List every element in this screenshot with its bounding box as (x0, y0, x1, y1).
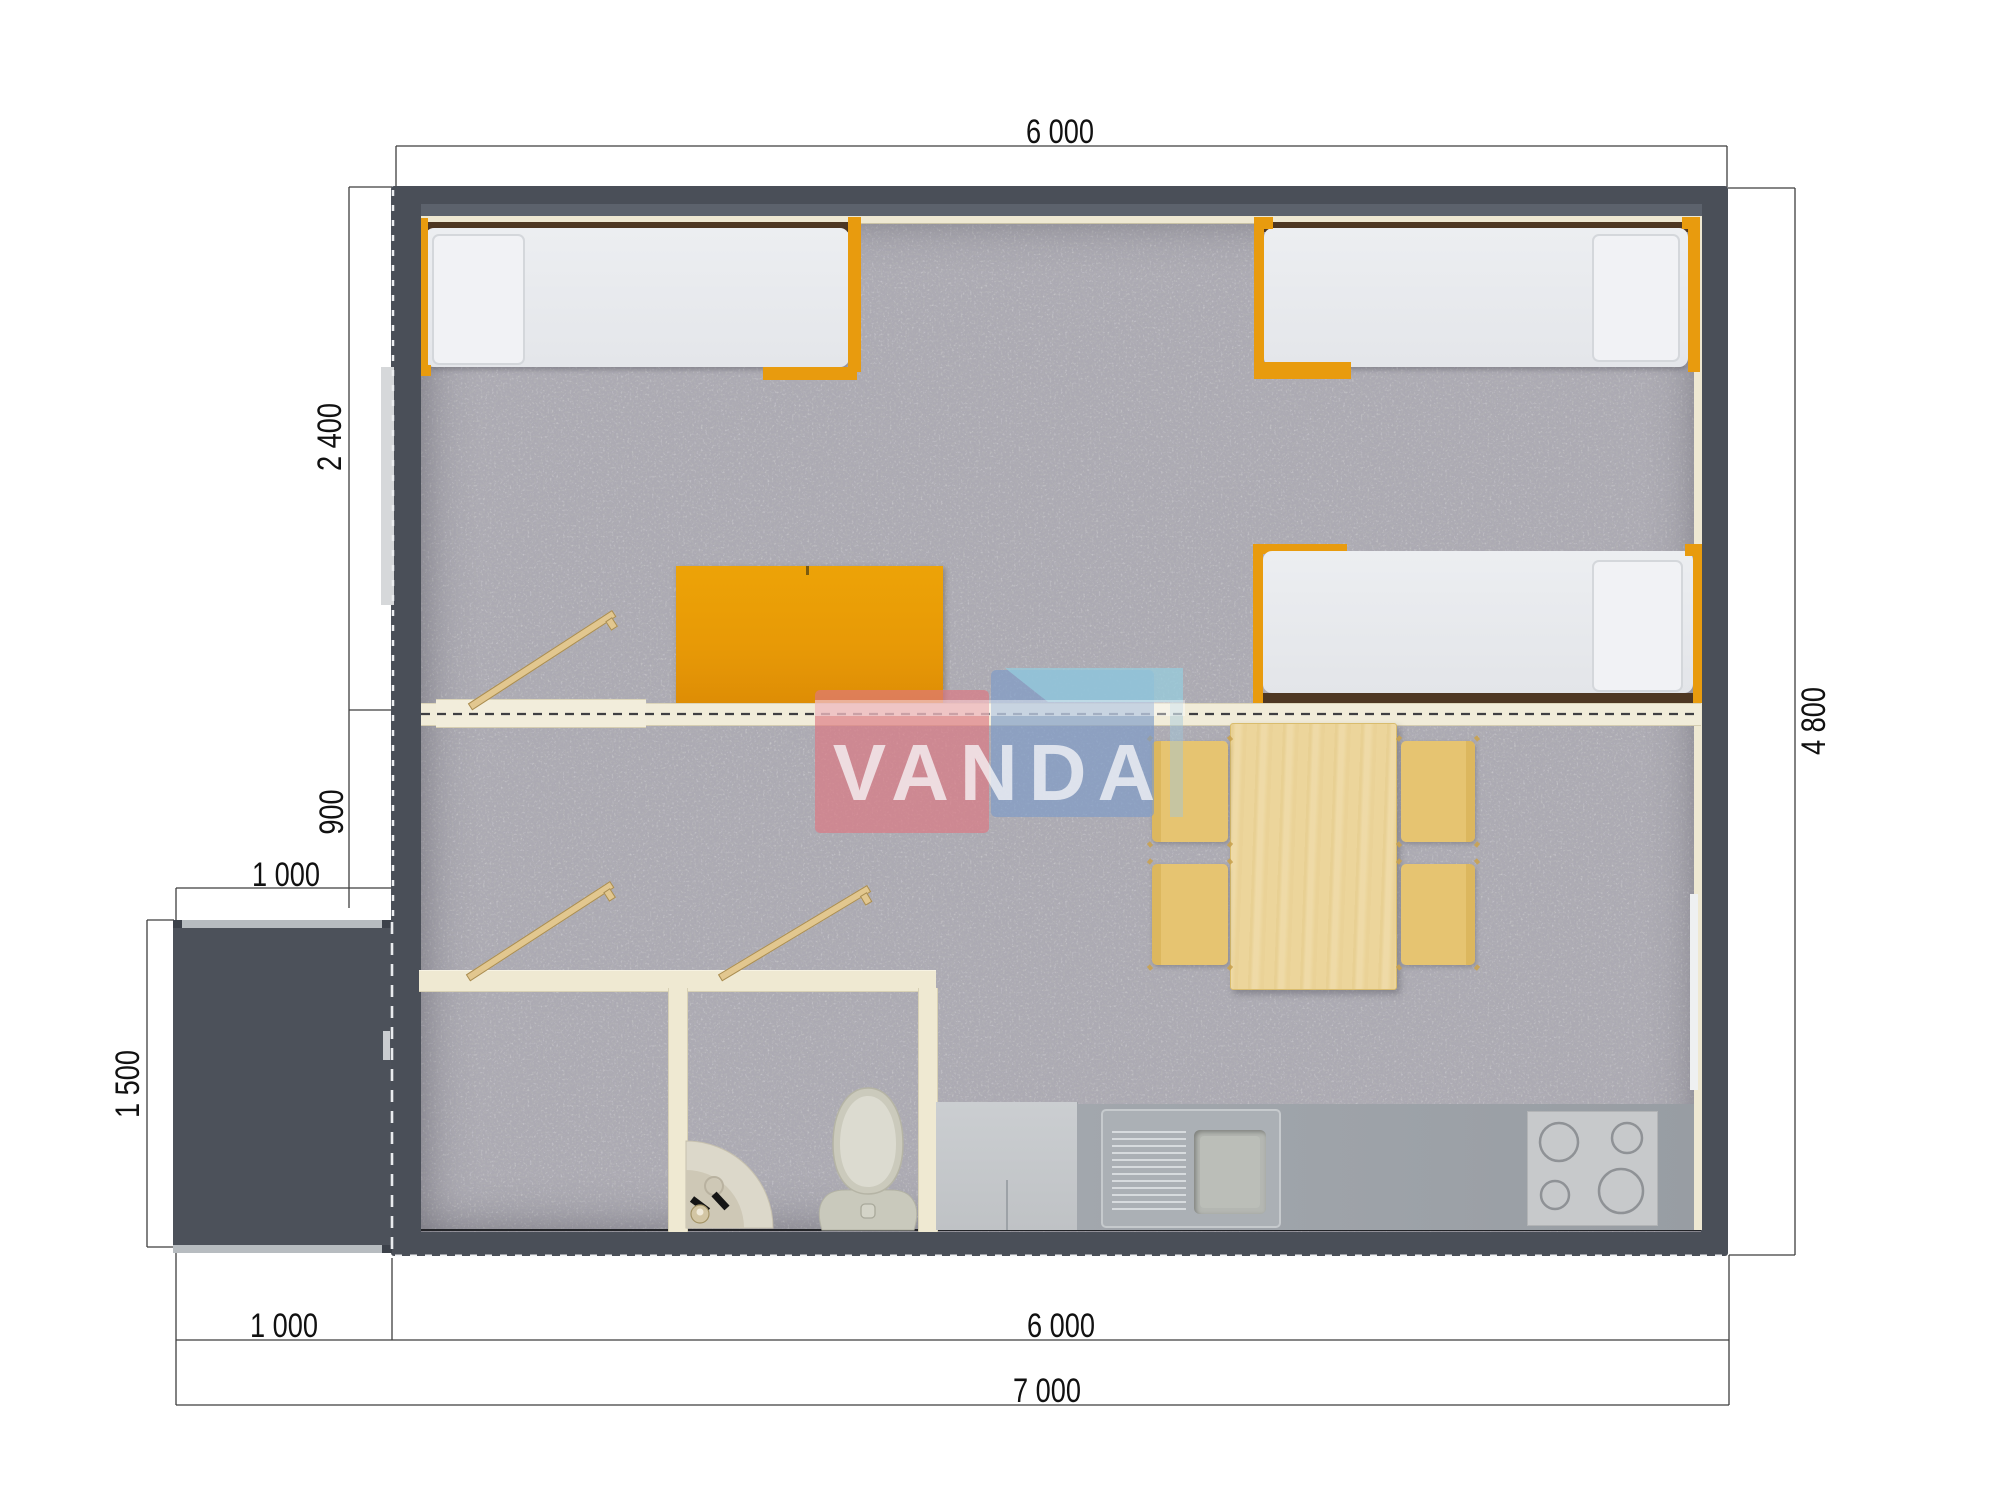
svg-text:2 400: 2 400 (310, 403, 349, 471)
svg-text:1 000: 1 000 (252, 855, 320, 894)
svg-text:1 500: 1 500 (108, 1050, 147, 1118)
svg-text:6 000: 6 000 (1026, 112, 1094, 151)
svg-text:7 000: 7 000 (1013, 1371, 1081, 1410)
svg-text:1 000: 1 000 (250, 1306, 318, 1345)
svg-text:4 800: 4 800 (1794, 687, 1833, 755)
svg-text:900: 900 (312, 789, 351, 834)
svg-text:6 000: 6 000 (1027, 1306, 1095, 1345)
